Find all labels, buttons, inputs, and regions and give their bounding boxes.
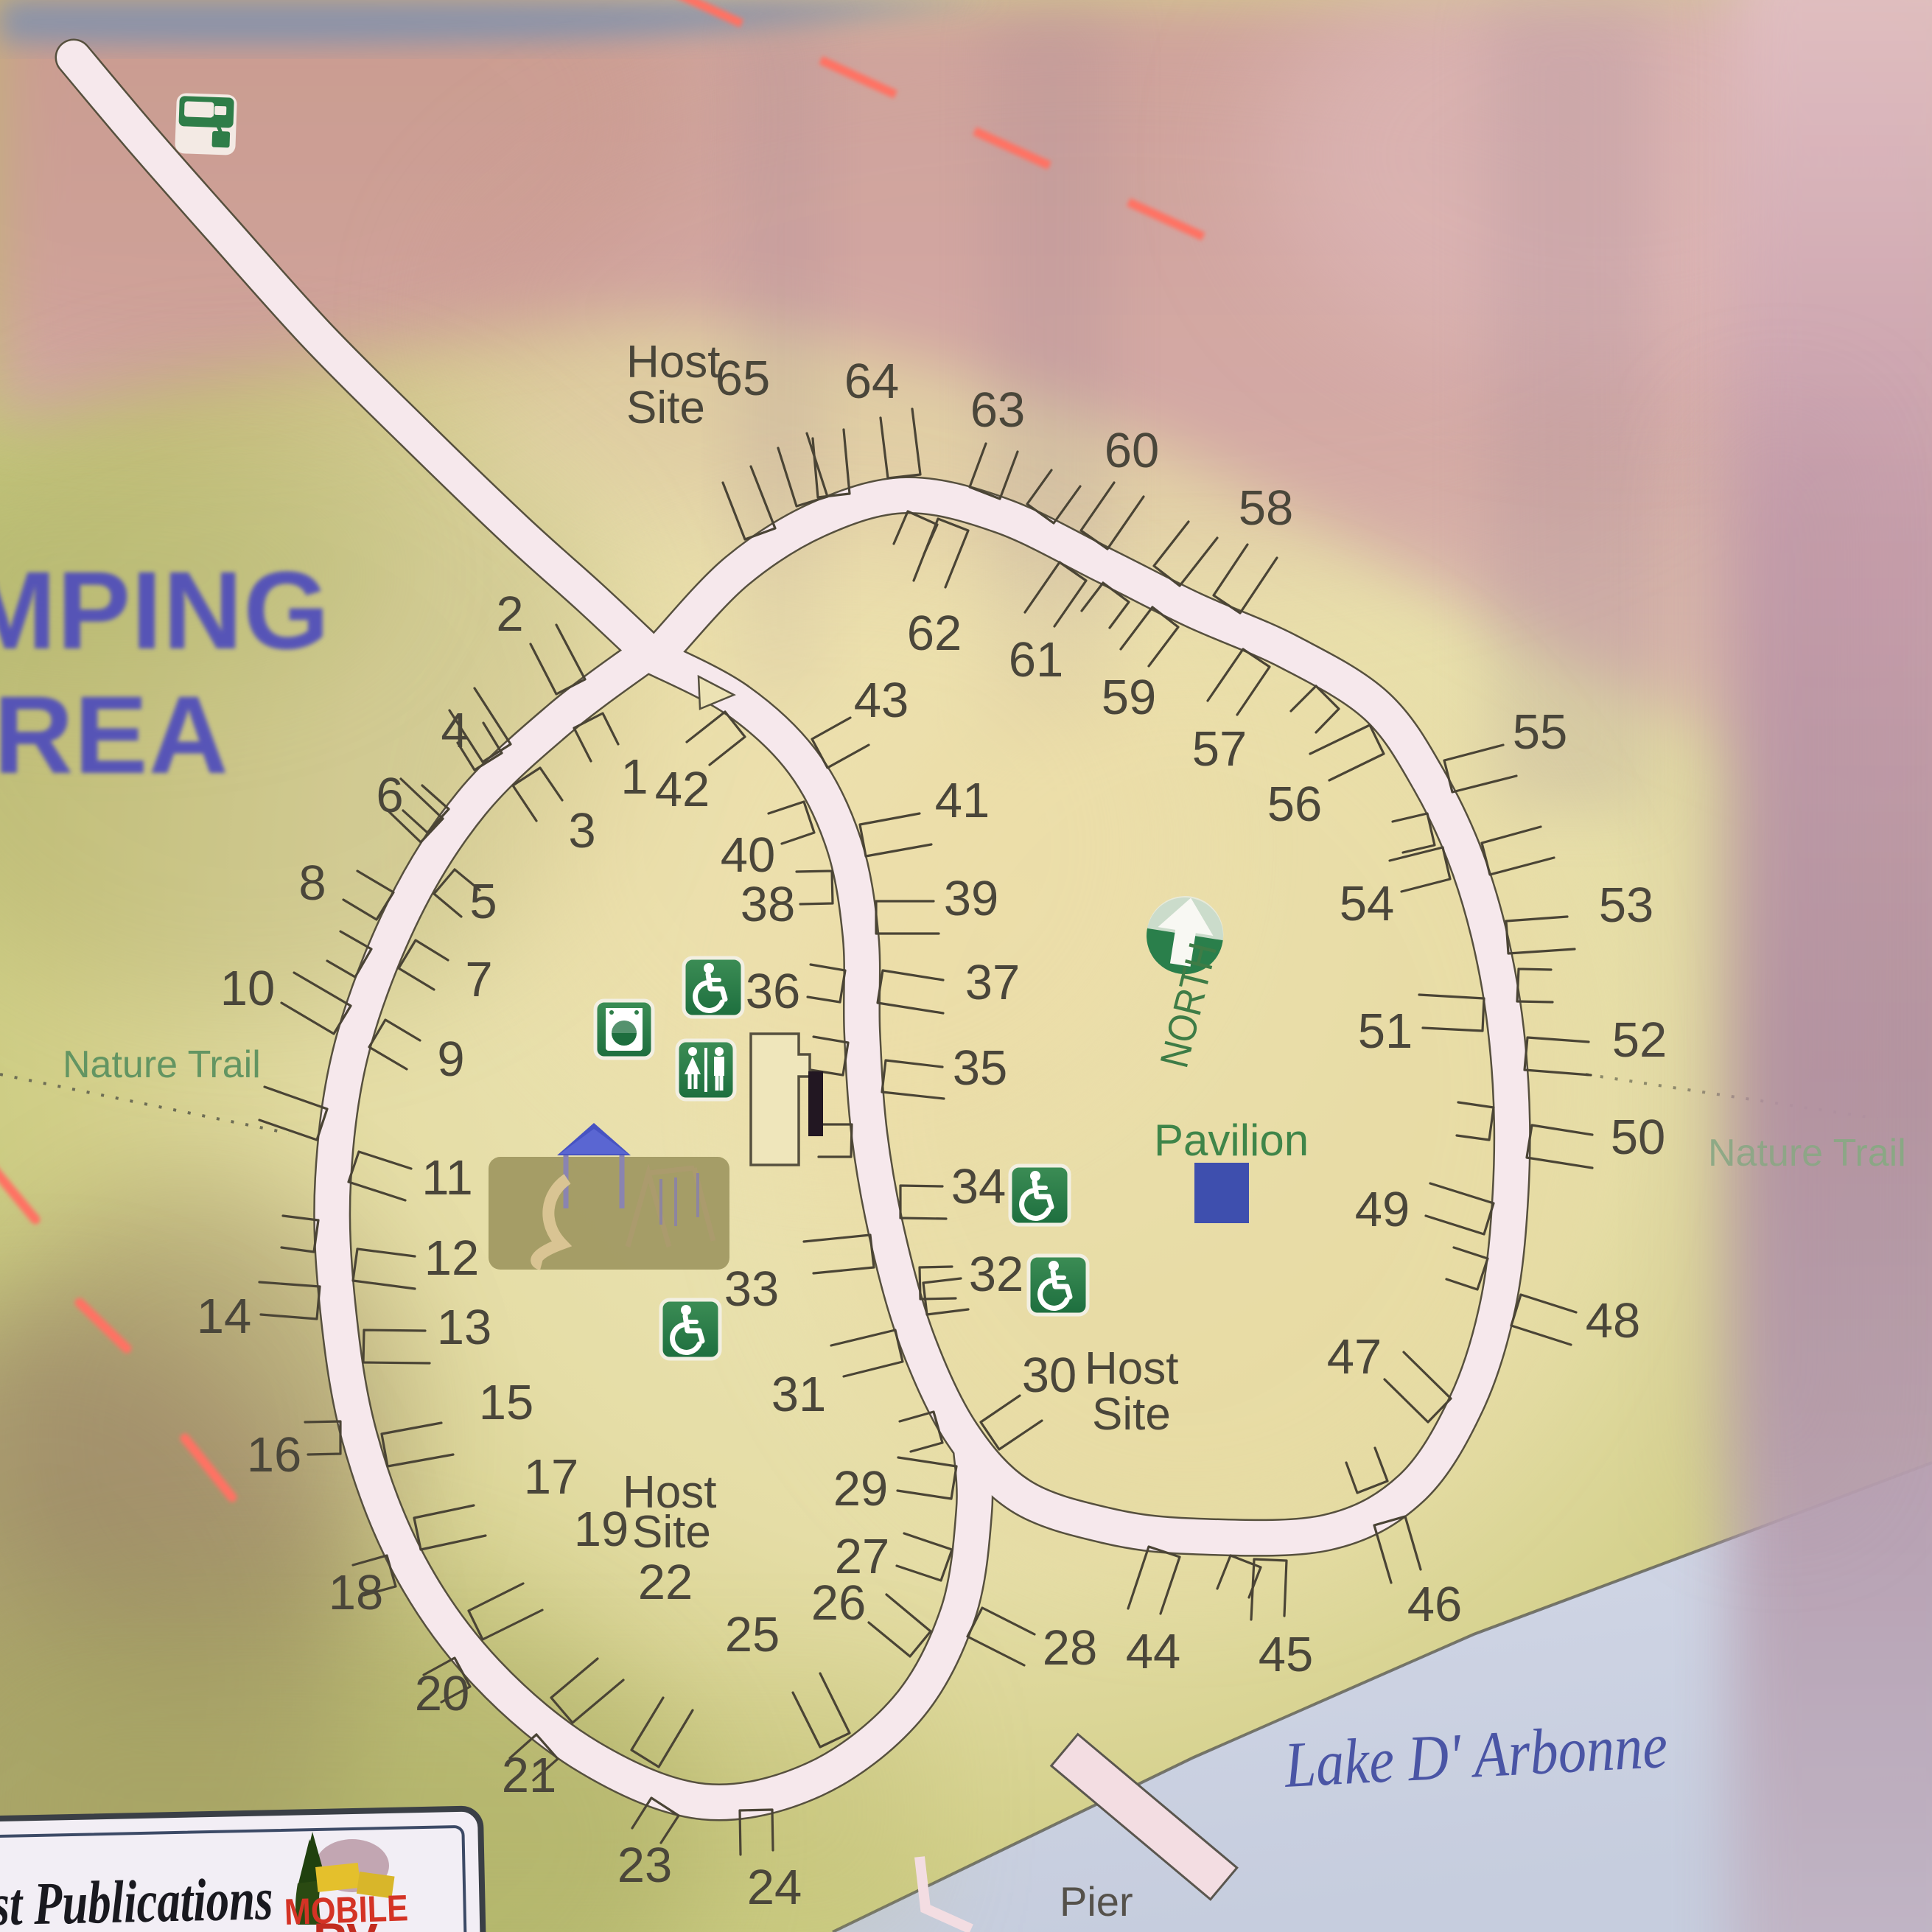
- svg-text:24: 24: [747, 1860, 802, 1915]
- svg-text:15: 15: [479, 1375, 534, 1430]
- svg-text:27: 27: [835, 1529, 890, 1584]
- svg-text:6: 6: [376, 768, 403, 823]
- svg-text:35: 35: [953, 1040, 1008, 1096]
- svg-text:1: 1: [620, 749, 648, 805]
- svg-text:Site: Site: [1092, 1389, 1171, 1440]
- svg-text:50: 50: [1611, 1110, 1666, 1165]
- svg-text:59: 59: [1102, 670, 1157, 725]
- svg-text:Pier: Pier: [1060, 1878, 1133, 1925]
- svg-text:5: 5: [469, 874, 497, 929]
- svg-text:63: 63: [970, 382, 1026, 438]
- svg-text:3: 3: [568, 803, 595, 858]
- svg-text:41: 41: [935, 773, 990, 828]
- svg-text:62: 62: [907, 606, 962, 661]
- svg-text:65: 65: [715, 351, 771, 406]
- svg-text:Site: Site: [632, 1507, 711, 1558]
- svg-text:9: 9: [437, 1032, 464, 1087]
- svg-text:12: 12: [424, 1231, 480, 1286]
- svg-text:49: 49: [1355, 1182, 1410, 1237]
- svg-text:Host: Host: [1085, 1343, 1178, 1394]
- svg-text:45: 45: [1259, 1627, 1314, 1682]
- svg-text:25: 25: [725, 1607, 780, 1662]
- svg-text:57: 57: [1192, 721, 1247, 777]
- svg-text:56: 56: [1267, 777, 1323, 832]
- svg-text:11: 11: [421, 1150, 473, 1205]
- svg-text:21: 21: [502, 1748, 557, 1803]
- svg-text:39: 39: [944, 871, 999, 926]
- svg-text:34: 34: [951, 1159, 1007, 1214]
- svg-text:AREA: AREA: [0, 673, 229, 797]
- svg-text:18: 18: [329, 1565, 384, 1620]
- svg-text:17: 17: [524, 1449, 579, 1505]
- svg-text:46: 46: [1407, 1577, 1463, 1632]
- svg-text:23: 23: [617, 1838, 673, 1893]
- svg-text:13: 13: [437, 1300, 492, 1355]
- svg-text:19: 19: [574, 1502, 629, 1557]
- svg-text:55: 55: [1513, 704, 1568, 760]
- svg-text:53: 53: [1599, 878, 1654, 933]
- svg-text:54: 54: [1340, 876, 1395, 931]
- svg-text:8: 8: [298, 855, 326, 911]
- svg-text:58: 58: [1239, 480, 1294, 536]
- svg-text:43: 43: [854, 673, 909, 728]
- svg-text:42: 42: [655, 762, 710, 817]
- svg-text:44: 44: [1126, 1624, 1181, 1679]
- svg-text:st Publications: st Publications: [0, 1865, 273, 1932]
- svg-text:AMPING: AMPING: [0, 548, 330, 672]
- svg-text:52: 52: [1612, 1012, 1667, 1068]
- svg-text:47: 47: [1327, 1329, 1382, 1385]
- svg-text:38: 38: [741, 877, 796, 932]
- svg-text:16: 16: [247, 1427, 302, 1483]
- svg-text:48: 48: [1586, 1293, 1641, 1348]
- svg-text:33: 33: [724, 1261, 780, 1317]
- svg-text:40: 40: [721, 827, 776, 883]
- svg-text:36: 36: [746, 964, 801, 1019]
- svg-text:64: 64: [844, 354, 900, 409]
- svg-text:Host: Host: [626, 337, 720, 388]
- svg-text:Nature Trail: Nature Trail: [63, 1043, 261, 1086]
- svg-text:RV: RV: [313, 1914, 378, 1932]
- svg-text:61: 61: [1009, 632, 1064, 687]
- svg-text:2: 2: [496, 587, 523, 642]
- svg-text:7: 7: [465, 952, 492, 1007]
- svg-text:29: 29: [833, 1461, 889, 1516]
- svg-text:Site: Site: [626, 382, 705, 433]
- svg-text:30: 30: [1022, 1348, 1077, 1403]
- svg-text:31: 31: [771, 1367, 827, 1422]
- svg-text:51: 51: [1358, 1004, 1413, 1059]
- svg-text:28: 28: [1043, 1620, 1098, 1676]
- svg-text:10: 10: [220, 961, 276, 1016]
- svg-text:4: 4: [441, 703, 468, 758]
- svg-text:37: 37: [965, 955, 1021, 1010]
- svg-text:14: 14: [197, 1289, 252, 1344]
- svg-text:22: 22: [638, 1555, 693, 1610]
- svg-text:20: 20: [415, 1666, 470, 1721]
- svg-text:60: 60: [1105, 423, 1160, 478]
- svg-text:Pavilion: Pavilion: [1154, 1116, 1309, 1165]
- svg-text:32: 32: [969, 1247, 1024, 1302]
